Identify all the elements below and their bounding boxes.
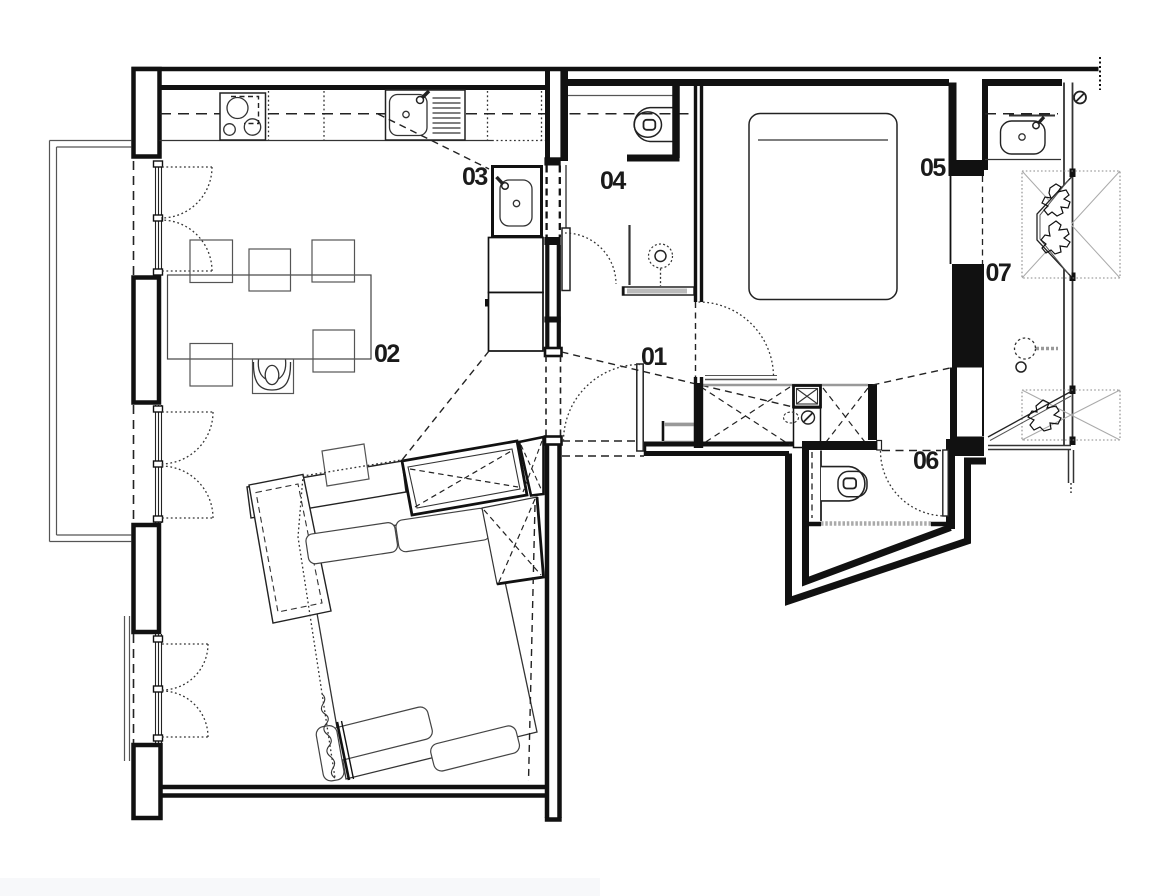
svg-text:04: 04 (600, 167, 626, 195)
svg-text:06: 06 (913, 447, 938, 475)
svg-text:03: 03 (462, 163, 487, 191)
svg-text:07: 07 (986, 259, 1011, 287)
svg-text:01: 01 (641, 343, 667, 371)
svg-text:05: 05 (920, 154, 946, 182)
svg-text:02: 02 (374, 340, 399, 368)
